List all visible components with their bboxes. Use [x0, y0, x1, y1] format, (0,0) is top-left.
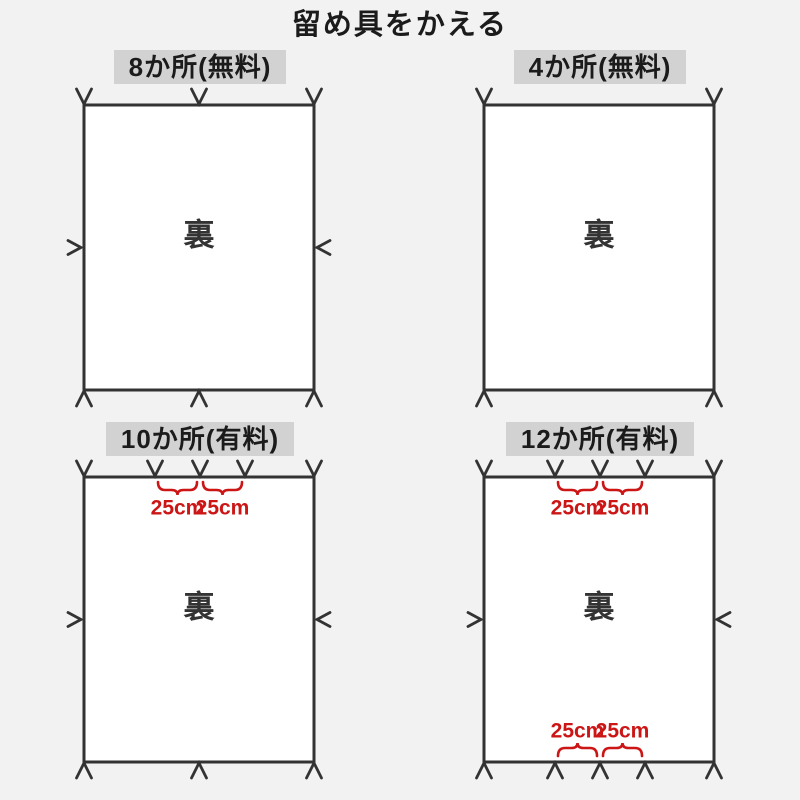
back-side-label: 裏 — [184, 590, 216, 625]
back-side-label: 裏 — [584, 218, 616, 253]
fastener-mark-right — [317, 241, 330, 255]
panel-label: 8か所(無料) — [114, 50, 287, 84]
fastener-mark-top — [593, 461, 608, 476]
fastener-mark-top — [148, 461, 163, 476]
fastener-mark-top — [77, 89, 92, 104]
panel-diagram: 裏 — [0, 83, 400, 415]
panel-12-places-paid: 12か所(有料) 25cm25cm25cm25cm裏 — [400, 415, 800, 787]
measure-label: 25cm — [196, 497, 250, 520]
fastener-mark-left — [68, 241, 81, 255]
fastener-mark-bottom — [192, 763, 207, 778]
fastener-mark-top — [548, 461, 563, 476]
fastener-mark-bottom — [548, 763, 563, 778]
measure-label: 25cm — [596, 720, 650, 743]
fastener-mark-top — [707, 89, 722, 104]
fastener-mark-right — [717, 613, 730, 627]
fastener-mark-top — [477, 461, 492, 476]
page: 留め具をかえる 8か所(無料) 裏 4か所(無料) 裏 10か所(有料) 25c… — [0, 0, 800, 787]
fastener-mark-bottom — [593, 763, 608, 778]
panel-diagram: 25cm25cm裏 — [0, 455, 400, 787]
fastener-mark-left — [68, 613, 81, 627]
panel-diagram: 裏 — [400, 83, 800, 415]
fastener-mark-bottom — [307, 763, 322, 778]
fastener-mark-top — [638, 461, 653, 476]
fastener-mark-bottom — [477, 391, 492, 406]
fastener-mark-top — [77, 461, 92, 476]
measure-label: 25cm — [596, 497, 650, 520]
panel-8-places-free: 8か所(無料) 裏 — [0, 44, 400, 415]
fastener-mark-top — [193, 461, 208, 476]
panels-grid: 8か所(無料) 裏 4か所(無料) 裏 10か所(有料) 25cm25cm裏 1… — [0, 44, 800, 787]
fastener-mark-bottom — [477, 763, 492, 778]
fastener-mark-bottom — [638, 763, 653, 778]
fastener-mark-top — [238, 461, 253, 476]
page-title: 留め具をかえる — [0, 0, 800, 44]
fastener-mark-bottom — [192, 391, 207, 406]
panel-label: 12か所(有料) — [506, 422, 694, 456]
panel-10-places-paid: 10か所(有料) 25cm25cm裏 — [0, 415, 400, 787]
fastener-mark-top — [477, 89, 492, 104]
fastener-mark-bottom — [707, 763, 722, 778]
back-side-label: 裏 — [584, 590, 616, 625]
panel-4-places-free: 4か所(無料) 裏 — [400, 44, 800, 415]
fastener-mark-bottom — [707, 391, 722, 406]
fastener-mark-bottom — [77, 391, 92, 406]
panel-label: 10か所(有料) — [106, 422, 294, 456]
fastener-mark-bottom — [77, 763, 92, 778]
panel-label: 4か所(無料) — [514, 50, 687, 84]
fastener-mark-top — [707, 461, 722, 476]
fastener-mark-top — [192, 89, 207, 104]
fastener-mark-left — [468, 613, 481, 627]
fastener-mark-top — [307, 461, 322, 476]
panel-diagram: 25cm25cm25cm25cm裏 — [400, 455, 800, 787]
fastener-mark-right — [317, 613, 330, 627]
fastener-mark-top — [307, 89, 322, 104]
fastener-mark-bottom — [307, 391, 322, 406]
back-side-label: 裏 — [184, 218, 216, 253]
